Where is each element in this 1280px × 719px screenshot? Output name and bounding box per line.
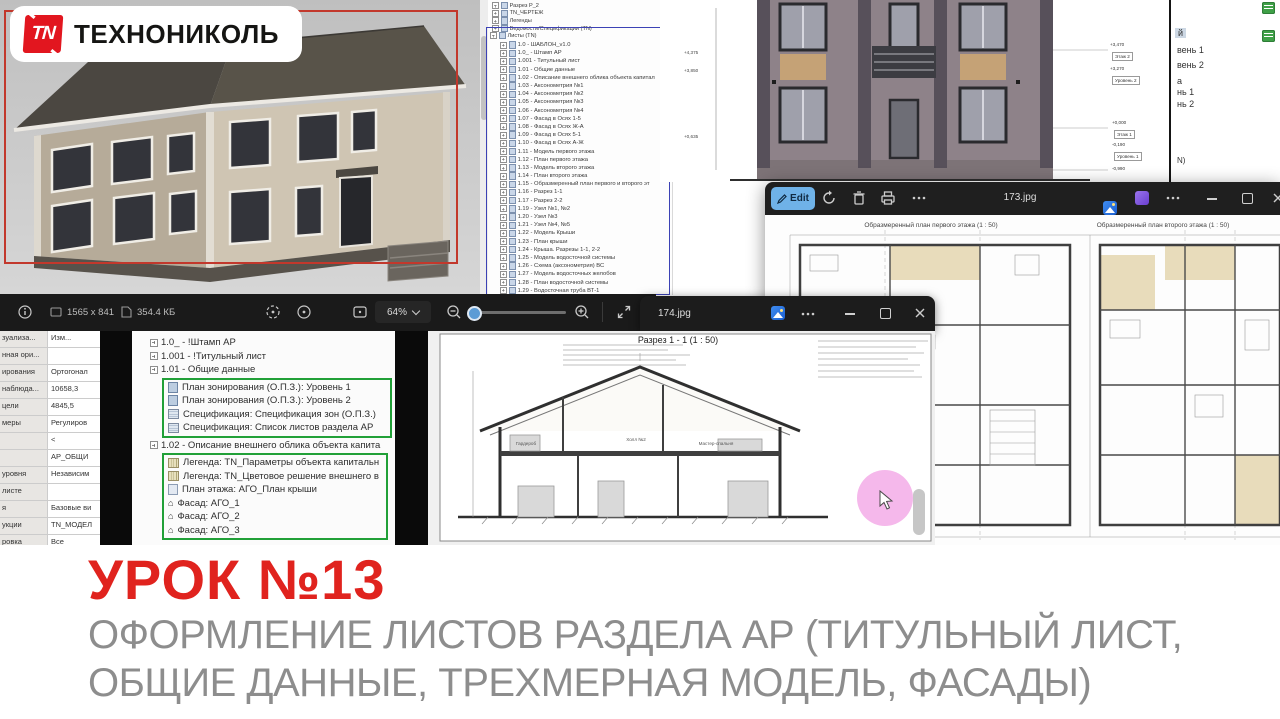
zoom-box-icon[interactable] xyxy=(352,304,368,320)
tree-item-label: Легенда: TN_Параметры объекта капитальн xyxy=(183,457,379,468)
property-row: листе xyxy=(0,484,100,501)
zoom-level-dropdown[interactable]: 64% xyxy=(375,301,431,323)
revit-properties-panel: зуализа... Изм... нная ори... ирования О… xyxy=(0,331,100,548)
property-label: зуализа... xyxy=(0,331,47,347)
tree-item[interactable]: вень 1 xyxy=(1177,45,1204,55)
revit-3d-view: TN ТЕХНОНИКОЛЬ xyxy=(0,0,480,295)
green-highlight-box-1: План зонирования (О.П.З.): Уровень 1 Пла… xyxy=(162,378,392,438)
tree-item-selected[interactable]: й xyxy=(1175,28,1186,38)
room-label: Мастер-спальня xyxy=(676,441,756,446)
image-dimensions: 1565 x 841 xyxy=(67,307,114,318)
tree-item[interactable]: нь 1 xyxy=(1177,87,1194,97)
category-icon xyxy=(501,2,508,9)
property-row: ирования Ортогонал xyxy=(0,365,100,382)
property-row: цели 4845,5 xyxy=(0,399,100,416)
tree-item[interactable]: 1.01 - Общие данные xyxy=(150,363,395,377)
property-label: ирования xyxy=(0,365,47,381)
green-highlight-box-2: Легенда: TN_Параметры объекта капитальн … xyxy=(162,453,388,540)
tree-item[interactable]: Фасад: АГО_2 xyxy=(168,510,386,524)
print-icon[interactable] xyxy=(880,190,896,206)
photos-app-icon[interactable] xyxy=(1103,201,1117,215)
property-row: уровня Независим xyxy=(0,467,100,484)
actual-size-icon[interactable] xyxy=(296,304,312,320)
level-elevation: -0,190 xyxy=(1112,142,1125,147)
property-label: цели xyxy=(0,399,47,415)
level-tag: Уровень 2 xyxy=(1112,76,1140,85)
titlebar-173: Edit 173.jpg xyxy=(765,182,1280,215)
level-tag: Этаж 1 xyxy=(1114,130,1135,139)
chevron-down-icon xyxy=(412,306,420,314)
level-elevation: +3,270 xyxy=(1110,66,1124,71)
minimize-button[interactable] xyxy=(845,313,855,315)
property-label: я xyxy=(0,501,47,517)
room-label: Холл №2 xyxy=(608,437,664,442)
edit-button[interactable]: Edit xyxy=(771,187,815,210)
image-size-icon xyxy=(50,306,62,318)
tree-item-label: Легенда: TN_Цветовое решение внешнего в xyxy=(183,471,379,482)
blue-highlight-box xyxy=(486,27,670,295)
tree-item[interactable]: Фасад: АГО_1 xyxy=(168,497,386,511)
facade-icon xyxy=(168,526,173,535)
pencil-icon xyxy=(777,194,787,204)
tn-logo-icon: TN xyxy=(23,15,64,53)
tree-item[interactable]: Легенда: TN_Параметры объекта капитальн xyxy=(168,456,386,470)
zoomed-project-browser: 1.0_ - !Штамп АР 1.001 - !Титульный лист… xyxy=(132,331,395,548)
section-sheet-area: Разрез 1 - 1 (1 : 50) Гардероб Холл №2 М… xyxy=(428,331,935,548)
video-frame: TN ТЕХНОНИКОЛЬ Разрез Р_2 TN_ЧЕРТЕЖ xyxy=(0,0,1280,719)
tree-item[interactable]: 1.02 - Описание внешнего облика объекта … xyxy=(150,439,395,453)
close-button[interactable] xyxy=(912,305,928,321)
tree-item[interactable]: Спецификация: Спецификация зон (О.П.З.) xyxy=(168,408,390,422)
property-value[interactable] xyxy=(47,484,100,500)
logo-text: ТЕХНОНИКОЛЬ xyxy=(74,19,279,50)
section-drawing xyxy=(428,331,935,548)
property-value[interactable] xyxy=(47,348,100,364)
tree-item[interactable]: Легенда: TN_Цветовое решение внешнего в xyxy=(168,470,386,484)
tree-item[interactable]: Легенды xyxy=(492,17,670,25)
maximize-button[interactable] xyxy=(1242,193,1253,204)
property-label xyxy=(0,450,47,466)
category-icon xyxy=(501,17,508,24)
lesson-title: УРОК №13 xyxy=(88,547,385,612)
tree-item-label: 1.02 - Описание внешнего облика объекта … xyxy=(161,440,380,451)
file-size: 354.4 КБ xyxy=(137,307,175,318)
facade-icon xyxy=(168,499,173,508)
fit-screen-icon[interactable] xyxy=(265,304,281,320)
schedule-icon[interactable] xyxy=(1262,2,1275,14)
zoom-out-icon[interactable] xyxy=(446,304,462,320)
tree-item[interactable]: нь 2 xyxy=(1177,99,1194,109)
expand-icon[interactable] xyxy=(492,2,499,9)
property-row: наблюда... 10658,3 xyxy=(0,382,100,399)
dark-gap xyxy=(395,331,428,548)
tree-item: N) xyxy=(1177,156,1185,165)
photos-app-icon[interactable] xyxy=(771,306,785,320)
category-icon xyxy=(501,10,508,17)
level-tag: Уровень 1 xyxy=(1114,152,1142,161)
expand-icon[interactable] xyxy=(150,339,158,347)
property-label xyxy=(0,433,47,449)
tree-item-label: Фасад: АГО_2 xyxy=(177,511,239,522)
library-icon[interactable] xyxy=(1135,191,1149,205)
legend-icon xyxy=(168,471,179,481)
property-value[interactable]: 10658,3 xyxy=(47,382,100,398)
property-value[interactable]: Базовые ви xyxy=(47,501,100,517)
property-value[interactable]: < xyxy=(47,433,100,449)
dim-label: +0,635 xyxy=(684,134,698,139)
level-elevation: +0,000 xyxy=(1112,120,1126,125)
floor-plan-icon xyxy=(168,484,178,495)
delete-icon[interactable] xyxy=(851,190,867,206)
file-size-icon xyxy=(120,306,132,318)
collapse-icon[interactable] xyxy=(150,441,158,449)
property-value[interactable]: 4845,5 xyxy=(47,399,100,415)
tree-item-label: 1.001 - !Титульный лист xyxy=(161,351,266,362)
photo-viewer-toolbar: 1565 x 841 354.4 КБ 64% xyxy=(0,294,656,331)
tree-item-label: Разрез Р_2 xyxy=(510,3,539,9)
property-row: < xyxy=(0,433,100,450)
lesson-subtitle-line1: ОФОРМЛЕНИЕ ЛИСТОВ РАЗДЕЛА АР (ТИТУЛЬНЫЙ … xyxy=(88,613,1182,658)
tree-item[interactable]: План зонирования (О.П.З.): Уровень 2 xyxy=(168,394,390,408)
project-browser-panel: Разрез Р_2 TN_ЧЕРТЕЖ Легенды Ведомости/С… xyxy=(480,0,673,295)
lesson-subtitle-line2: ОБЩИЕ ДАННЫЕ, ТРЕХМЕРНАЯ МОДЕЛЬ, ФАСАДЫ) xyxy=(88,661,1091,706)
zoom-in-icon[interactable] xyxy=(574,304,590,320)
legend-icon xyxy=(168,458,179,468)
property-value[interactable]: TN_МОДЕЛ xyxy=(47,518,100,534)
property-row: меры Регулиров xyxy=(0,416,100,433)
schedule-icon xyxy=(168,409,179,419)
expand-icon[interactable] xyxy=(150,352,158,360)
tree-item[interactable]: План зонирования (О.П.З.): Уровень 1 xyxy=(168,381,390,395)
tree-item[interactable]: Фасад: АГО_3 xyxy=(168,524,386,538)
maximize-button[interactable] xyxy=(880,308,891,319)
schedule-icon xyxy=(168,423,179,433)
tree-item-label: 1.0_ - !Штамп АР xyxy=(161,337,236,348)
tree-item-label: Легенды xyxy=(510,18,532,24)
tree-item[interactable]: 1.001 - !Титульный лист xyxy=(150,350,395,364)
more-icon[interactable] xyxy=(911,190,927,206)
photo-window-174-titlebar: 174.jpg xyxy=(640,296,935,331)
property-label: меры xyxy=(0,416,47,432)
right-cut-panel: й вень 1 вень 2 а нь 1 нь 2 N) xyxy=(1169,0,1280,182)
mouse-cursor xyxy=(878,490,896,510)
property-value[interactable]: АР_ОБЩИ xyxy=(47,450,100,466)
view-icon xyxy=(168,382,178,393)
property-row: укции TN_МОДЕЛ xyxy=(0,518,100,535)
zoom-slider-track[interactable] xyxy=(470,311,566,314)
dim-label: +4,375 xyxy=(684,50,698,55)
lesson-banner: УРОК №13 ОФОРМЛЕНИЕ ЛИСТОВ РАЗДЕЛА АР (Т… xyxy=(0,545,1280,719)
rotate-icon[interactable] xyxy=(821,190,837,206)
property-label: нная ори... xyxy=(0,348,47,364)
more-icon[interactable] xyxy=(800,306,816,322)
level-elevation: -0,990 xyxy=(1112,166,1125,171)
tree-item[interactable]: План этажа: АГО_План крыши xyxy=(168,483,386,497)
tree-item-label: Фасад: АГО_1 xyxy=(177,498,239,509)
tree-item[interactable]: Разрез Р_2 xyxy=(492,2,670,10)
tree-item-label: Спецификация: Спецификация зон (О.П.З.) xyxy=(183,409,376,420)
property-value[interactable]: Изм... xyxy=(47,331,100,347)
level-tag: Этаж 2 xyxy=(1112,52,1133,61)
close-button[interactable] xyxy=(1270,190,1280,206)
tree-item[interactable]: 1.0_ - !Штамп АР xyxy=(150,336,395,350)
scrollbar-thumb[interactable] xyxy=(913,489,925,535)
zoom-level-value: 64% xyxy=(387,307,407,318)
divider xyxy=(602,302,603,322)
property-value[interactable]: Регулиров xyxy=(47,416,100,432)
plan-title-left: Образмеренный план первого этажа (1 : 50… xyxy=(825,222,1037,229)
technonicol-logo: TN ТЕХНОНИКОЛЬ xyxy=(10,6,302,62)
expand-icon[interactable] xyxy=(492,10,499,17)
tree-item-label: Фасад: АГО_3 xyxy=(177,525,239,536)
facade-drawing: +4,375 +3,850 +0,635 +3,470 Этаж 2 +3,27… xyxy=(660,0,1169,182)
dim-label: +3,850 xyxy=(684,68,698,73)
property-row: зуализа... Изм... xyxy=(0,331,100,348)
info-icon[interactable] xyxy=(18,305,32,319)
view-icon xyxy=(168,395,178,406)
tree-item-label: Спецификация: Список листов раздела АР xyxy=(183,422,373,433)
facade-elevation-render xyxy=(660,0,1169,182)
plan-title-right: Образмеренный план второго этажа (1 : 50… xyxy=(1063,222,1263,229)
room-label: Гардероб xyxy=(498,441,554,446)
tree-item[interactable]: TN_ЧЕРТЕЖ xyxy=(492,10,670,18)
tree-item-label: План зонирования (О.П.З.): Уровень 1 xyxy=(182,382,351,393)
window-title: 174.jpg xyxy=(658,308,691,319)
tree-item[interactable]: а xyxy=(1177,76,1182,86)
facade-icon xyxy=(168,512,173,521)
tree-item-label: План зонирования (О.П.З.): Уровень 2 xyxy=(182,395,351,406)
edit-label: Edit xyxy=(790,193,809,204)
property-row: я Базовые ви xyxy=(0,501,100,518)
tree-item-label: 1.01 - Общие данные xyxy=(161,364,255,375)
collapse-icon[interactable] xyxy=(150,366,158,374)
property-label: листе xyxy=(0,484,47,500)
section-title: Разрез 1 - 1 (1 : 50) xyxy=(568,335,788,345)
tree-item-label: План этажа: АГО_План крыши xyxy=(182,484,317,495)
zoom-slider-thumb[interactable] xyxy=(467,306,482,321)
tree-item[interactable]: Спецификация: Список листов раздела АР xyxy=(168,421,390,435)
expand-icon[interactable] xyxy=(492,17,499,24)
property-value[interactable]: Ортогонал xyxy=(47,365,100,381)
level-elevation: +3,470 xyxy=(1110,42,1124,47)
property-label: уровня xyxy=(0,467,47,483)
fullscreen-icon[interactable] xyxy=(616,304,632,320)
dark-gap xyxy=(100,331,132,548)
property-label: наблюда... xyxy=(0,382,47,398)
property-row: нная ори... xyxy=(0,348,100,365)
property-row: АР_ОБЩИ xyxy=(0,450,100,467)
property-label: укции xyxy=(0,518,47,534)
tree-item-label: TN_ЧЕРТЕЖ xyxy=(510,10,544,16)
property-value[interactable]: Независим xyxy=(47,467,100,483)
tree-item[interactable]: вень 2 xyxy=(1177,60,1204,70)
minimize-button[interactable] xyxy=(1207,198,1217,200)
window-title: 173.jpg xyxy=(975,192,1065,203)
more-icon[interactable] xyxy=(1165,190,1181,206)
schedule-icon[interactable] xyxy=(1262,30,1275,42)
